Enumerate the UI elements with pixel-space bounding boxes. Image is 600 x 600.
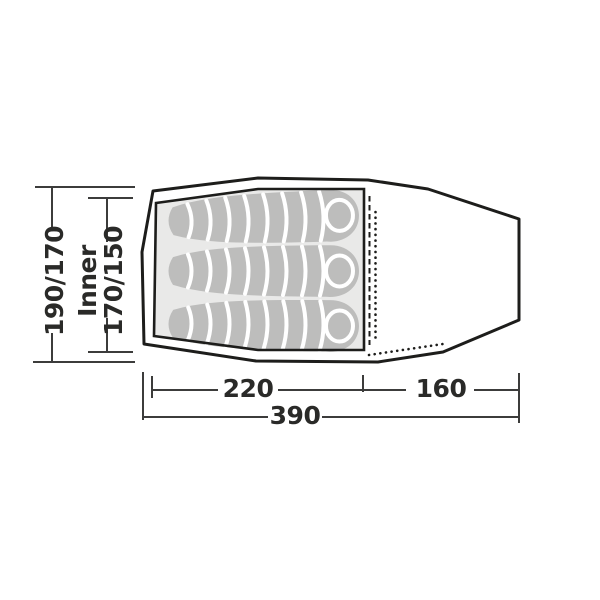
sleeping-bag-2 — [169, 245, 360, 297]
total-length-label: 390 — [270, 401, 321, 430]
tent-floorplan-page: 190/170 Inner 170/150 220 160 390 — [0, 0, 600, 600]
bag-hood-opening — [325, 199, 353, 231]
inner-width-label-line2: 170/150 — [99, 226, 128, 336]
inner-width-label-line1: Inner — [73, 244, 102, 317]
outer-width-label: 190/170 — [40, 226, 69, 336]
tent-floorplan-diagram: 190/170 Inner 170/150 220 160 390 — [0, 0, 600, 600]
sleeping-bags-group — [168, 189, 360, 352]
bag-hood-opening — [326, 256, 353, 287]
bag-hood-opening — [326, 310, 353, 341]
inner-length-label: 220 — [223, 374, 274, 403]
dimension-inner-width: Inner 170/150 — [73, 198, 133, 352]
dimension-length-split: 220 160 — [152, 373, 519, 423]
vestibule-length-label: 160 — [416, 374, 467, 403]
